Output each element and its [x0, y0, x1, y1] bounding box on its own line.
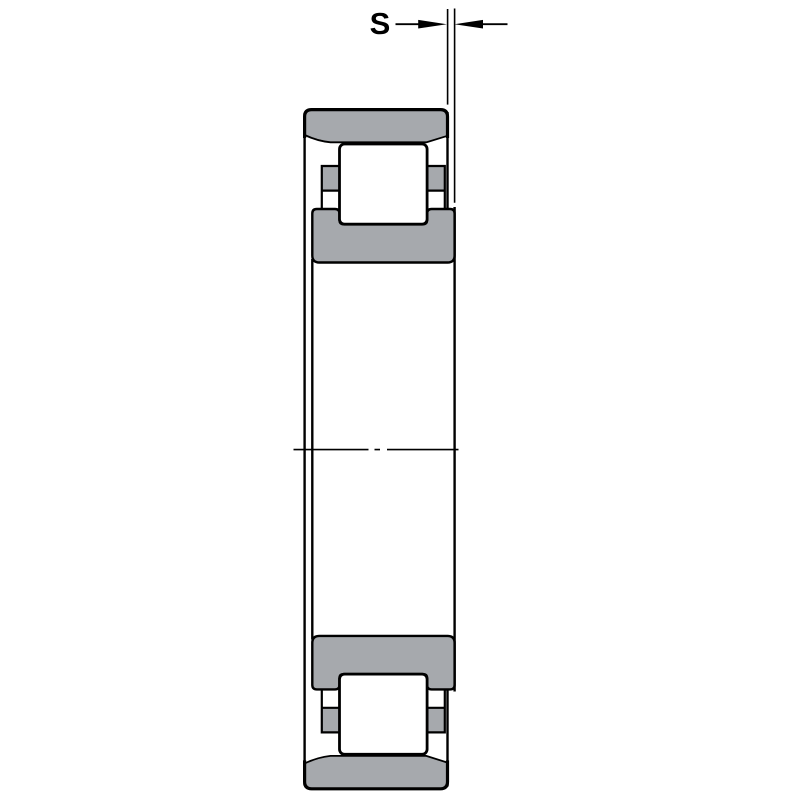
- svg-text:S: S: [370, 6, 391, 41]
